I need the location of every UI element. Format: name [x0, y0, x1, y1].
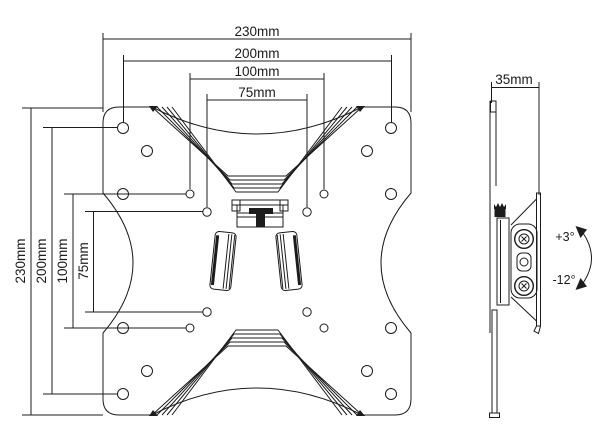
mounting-hole — [186, 190, 194, 198]
mounting-hole — [142, 146, 153, 157]
mounting-hole — [386, 389, 397, 400]
rib-line — [152, 346, 362, 415]
rib-line — [172, 330, 342, 415]
mounting-hole — [386, 189, 397, 200]
bracket-arm-top — [511, 199, 537, 225]
plate-lower-strip — [492, 310, 497, 413]
guide-slot-right — [276, 231, 303, 291]
slot-edge — [212, 235, 217, 285]
mounting-hole — [118, 389, 129, 400]
dim-height-100-label: 100mm — [55, 238, 70, 283]
mounting-hole — [203, 208, 211, 216]
mounting-hole — [362, 366, 373, 377]
rib-band-top — [152, 107, 362, 192]
dim-width-200: 200mm — [124, 46, 392, 122]
rib-line — [162, 338, 352, 415]
dim-height-200-label: 200mm — [34, 238, 49, 283]
dim-width-230-label: 230mm — [234, 24, 279, 39]
dim-lines — [85, 212, 203, 313]
mounting-hole — [386, 123, 397, 134]
dim-depth-35: 35mm — [492, 72, 540, 195]
dim-width-200-label: 200mm — [234, 46, 279, 61]
dim-width-100: 100mm — [190, 64, 324, 189]
mounting-hole — [303, 208, 311, 216]
slot-edge — [294, 235, 299, 285]
hook-rail — [497, 218, 509, 305]
wall-mount-technical-drawing: 230mm 200mm 100mm 75mm 230mm 200mm 100mm — [0, 0, 615, 444]
mounting-hole — [320, 190, 328, 198]
tilt-down-label: -12° — [552, 273, 575, 287]
rail-body — [497, 218, 509, 305]
clamp-screw — [494, 203, 506, 217]
dim-height-230-label: 230mm — [13, 238, 28, 283]
mounting-hole — [118, 123, 129, 134]
mounting-hole — [203, 308, 211, 316]
tilt-bracket — [511, 199, 537, 321]
tilt-up-label: +3° — [555, 230, 574, 244]
rib-line — [152, 107, 362, 176]
dim-width-75: 75mm — [207, 85, 307, 207]
plate-foot — [490, 413, 500, 418]
bracket-mark-vertical — [256, 214, 265, 227]
dim-lines — [207, 94, 307, 207]
tilt-range-arc — [583, 233, 592, 283]
rib-line — [157, 107, 357, 180]
rib-end-marks — [149, 106, 365, 416]
tilt-slot-hole — [520, 258, 528, 266]
dim-height-75-label: 75mm — [76, 242, 91, 280]
dim-lines — [492, 82, 540, 195]
plate-edge-profile — [490, 101, 500, 418]
mounting-holes — [118, 123, 397, 400]
mounting-hole — [303, 308, 311, 316]
mounting-hole — [362, 146, 373, 157]
front-view: 230mm 200mm 100mm 75mm 230mm 200mm 100mm — [13, 24, 411, 416]
dim-height-75: 75mm — [76, 212, 203, 313]
center-hook-bracket — [232, 200, 288, 227]
rib-line — [172, 107, 342, 192]
bracket-mark-horizontal — [249, 208, 273, 214]
dim-depth-35-label: 35mm — [495, 72, 533, 87]
mounting-hole — [142, 366, 153, 377]
tilt-screw-top-torx — [522, 237, 527, 242]
technical-drawing-page: 230mm 200mm 100mm 75mm 230mm 200mm 100mm — [0, 0, 615, 444]
dim-width-75-label: 75mm — [238, 85, 276, 100]
mounting-hole — [186, 324, 194, 332]
side-view: 35mm — [490, 72, 592, 418]
rib-line — [157, 342, 357, 415]
rib-band-bottom — [152, 330, 362, 415]
bracket-arm-bottom — [511, 297, 537, 321]
mounting-hole — [386, 323, 397, 334]
screw-serration — [494, 203, 506, 209]
tilt-range-indicator: +3° -12° — [552, 226, 591, 290]
screw-body — [495, 209, 506, 217]
tilt-screw-bottom-torx — [522, 284, 527, 289]
rear-face-foot — [534, 326, 541, 334]
mounting-hole — [320, 324, 328, 332]
dim-width-100-label: 100mm — [234, 64, 279, 79]
tilt-slot — [517, 253, 531, 271]
guide-slot-left — [210, 231, 237, 291]
